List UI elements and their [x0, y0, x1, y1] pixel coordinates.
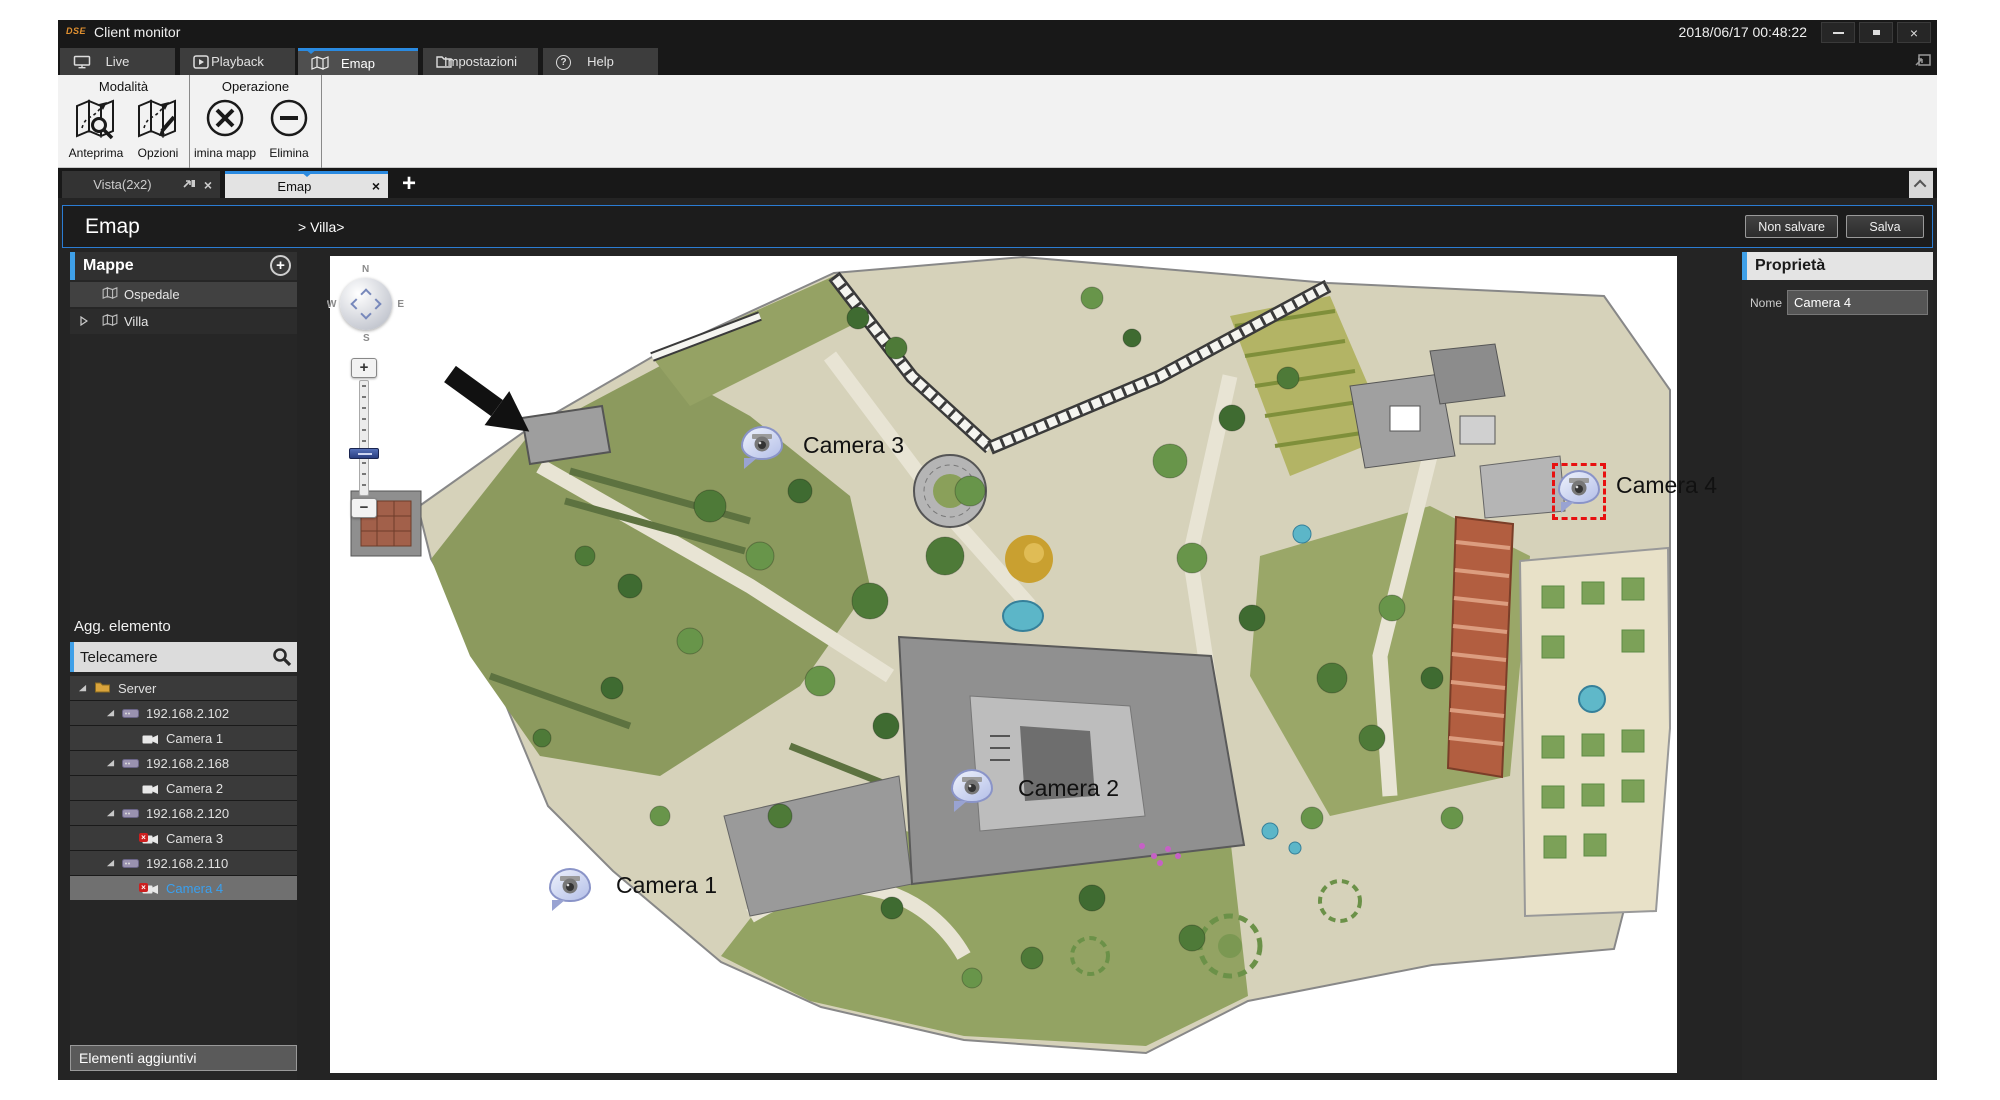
zoom-out-button[interactable]: − [351, 498, 377, 518]
offline-badge: × [139, 833, 148, 842]
main-tab-bar: Live Playback Emap Impostazioni ? Help [58, 46, 1937, 75]
tree-item-device[interactable]: 192.168.2.102 [70, 701, 297, 725]
title-bar: DSE Client monitor 2018/06/17 00:48:22 × [58, 20, 1937, 46]
remove-icon [266, 127, 312, 144]
monitor-icon [73, 55, 91, 72]
expander-icon[interactable] [106, 856, 115, 871]
app-logo-icon: DSE [66, 26, 86, 36]
camera-offline-icon: × [142, 833, 159, 844]
camera4-marker[interactable] [1558, 470, 1600, 504]
tree-item-device[interactable]: 192.168.2.110 [70, 851, 297, 875]
pan-down-arrow[interactable] [360, 308, 371, 319]
tab-label: Help [587, 54, 614, 69]
elimina-button[interactable]: Elimina [258, 98, 320, 160]
properties-header: Proprietà [1742, 252, 1933, 280]
dome-camera-icon [959, 776, 985, 796]
tree-label: Camera 4 [166, 881, 223, 896]
map-edit-icon [135, 127, 181, 144]
help-icon: ? [556, 55, 571, 70]
camera-icon [142, 733, 159, 744]
search-input[interactable] [80, 645, 260, 669]
offline-badge: × [139, 883, 148, 892]
view-tab-bar: Vista(2x2) × Emap × + [58, 168, 1937, 198]
chevron-up-icon [1913, 180, 1926, 193]
close-button[interactable]: × [1897, 22, 1931, 43]
tree-label: Camera 3 [166, 831, 223, 846]
ribbon: Modalità Anteprima Opzioni Operazione im… [58, 75, 1937, 168]
anteprima-button[interactable]: Anteprima [65, 98, 127, 160]
button-label: Opzioni [127, 146, 189, 160]
button-label: Anteprima [65, 146, 127, 160]
zoom-in-button[interactable]: + [351, 358, 377, 378]
camera-tree: Server 192.168.2.102 Camera 1 192.168.2.… [70, 676, 297, 900]
view-tab-emap[interactable]: Emap × [225, 171, 388, 198]
maximize-icon [1871, 28, 1882, 37]
map-item-ospedale[interactable]: Ospedale [70, 282, 297, 307]
pan-right-arrow[interactable] [370, 298, 381, 309]
ribbon-group-modalita: Modalità Anteprima Opzioni [58, 75, 190, 168]
maps-panel-header: Mappe + [70, 252, 297, 280]
sidebar: Mappe + Ospedale Villa Agg. elemento Ser… [70, 252, 297, 1080]
tree-item-camera[interactable]: Camera 1 [70, 726, 297, 750]
tree-item-device[interactable]: 192.168.2.168 [70, 751, 297, 775]
camera4-label: Camera 4 [1616, 472, 1717, 499]
add-tab-button[interactable]: + [396, 171, 422, 198]
button-label: imina mapp [194, 146, 256, 160]
elimina-mappa-button[interactable]: imina mapp [194, 98, 256, 160]
maps-header-label: Mappe [83, 257, 134, 274]
dock-icon[interactable] [183, 177, 196, 192]
map-preview-icon [73, 127, 119, 144]
delete-map-icon [202, 127, 248, 144]
properties-header-label: Proprietà [1755, 257, 1825, 274]
save-button[interactable]: Salva [1846, 215, 1924, 238]
dome-camera-icon [557, 875, 583, 895]
tree-label: 192.168.2.102 [146, 706, 229, 721]
tree-label: Server [118, 681, 156, 696]
tree-label: Camera 2 [166, 781, 223, 796]
compass-south-label: S [363, 333, 370, 344]
tab-playback[interactable]: Playback [180, 48, 295, 75]
group-label: Modalità [58, 79, 189, 94]
nvr-icon [122, 856, 139, 871]
map-icon [311, 56, 329, 73]
name-field[interactable] [1787, 290, 1928, 315]
expander-icon[interactable] [78, 681, 87, 696]
app-window: DSE Client monitor 2018/06/17 00:48:22 ×… [58, 20, 1937, 1080]
tab-label: Playback [211, 54, 264, 69]
camera3-label: Camera 3 [803, 432, 904, 459]
search-icon[interactable] [272, 647, 292, 672]
zoom-slider-handle[interactable] [349, 448, 379, 459]
nvr-icon [122, 806, 139, 821]
close-tab-icon[interactable]: × [196, 177, 220, 193]
page-title: Emap [85, 215, 140, 239]
expand-arrow-icon[interactable] [80, 314, 88, 329]
nvr-icon [122, 756, 139, 771]
group-label: Operazione [190, 79, 321, 94]
camera-offline-icon: × [142, 883, 159, 894]
window-title: Client monitor [94, 24, 180, 40]
additional-elements-bar[interactable]: Elementi aggiuntivi [70, 1045, 297, 1071]
add-map-button[interactable]: + [270, 255, 291, 276]
tree-item-camera-offline[interactable]: × Camera 3 [70, 826, 297, 850]
view-tab-vista[interactable]: Vista(2x2) × [62, 171, 220, 198]
map-item-villa[interactable]: Villa [70, 309, 297, 334]
villa-map-illustration [330, 256, 1677, 1073]
camera2-marker[interactable] [951, 769, 993, 803]
tree-item-device[interactable]: 192.168.2.120 [70, 801, 297, 825]
expander-icon[interactable] [106, 806, 115, 821]
folder-icon [436, 55, 452, 71]
discard-button[interactable]: Non salvare [1745, 215, 1838, 238]
camera3-marker[interactable] [741, 426, 783, 460]
tab-label: Impostazioni [444, 54, 517, 69]
compass-north-label: N [362, 264, 369, 275]
compass-control[interactable]: N S W E [340, 278, 392, 330]
opzioni-button[interactable]: Opzioni [127, 98, 189, 160]
map-icon [102, 287, 118, 302]
camera1-label: Camera 1 [616, 872, 717, 899]
expander-icon[interactable] [106, 706, 115, 721]
camera2-label: Camera 2 [1018, 775, 1119, 802]
tab-live[interactable]: Live [60, 48, 175, 75]
camera-search-box [70, 642, 297, 672]
map-icon [102, 314, 118, 329]
properties-panel: Proprietà Nome [1742, 252, 1933, 1080]
close-tab-icon[interactable]: × [364, 178, 388, 194]
tab-label: Live [106, 54, 130, 69]
expander-icon[interactable] [106, 756, 115, 771]
button-label: Elimina [258, 146, 320, 160]
map-item-label: Ospedale [124, 287, 180, 302]
popout-icon[interactable] [1915, 52, 1931, 71]
zoom-ticks [362, 385, 366, 491]
tree-item-camera[interactable]: Camera 2 [70, 776, 297, 800]
folder-icon [94, 680, 111, 696]
tab-impostazioni[interactable]: Impostazioni [423, 48, 538, 75]
breadcrumb: > Villa> [298, 219, 344, 235]
dome-camera-icon [749, 433, 775, 453]
zoom-slider-track[interactable] [359, 380, 369, 496]
dome-camera-icon [1566, 477, 1592, 497]
tree-label: 192.168.2.120 [146, 806, 229, 821]
emap-header-bar: Emap > Villa> Non salvare Salva [62, 205, 1933, 248]
minimize-button[interactable] [1821, 22, 1855, 43]
view-tab-label: Emap [225, 179, 364, 194]
pan-up-arrow[interactable] [360, 288, 371, 299]
play-icon [193, 55, 209, 72]
compass-east-label: E [397, 299, 404, 310]
compass-west-label: W [327, 299, 336, 310]
tree-label: 192.168.2.168 [146, 756, 229, 771]
map-item-label: Villa [124, 314, 148, 329]
add-element-label: Agg. elemento [74, 618, 171, 635]
nvr-icon [122, 706, 139, 721]
tree-item-server[interactable]: Server [70, 676, 297, 700]
view-tab-label: Vista(2x2) [62, 177, 183, 192]
tree-item-camera-selected[interactable]: × Camera 4 [70, 876, 297, 900]
collapse-ribbon-button[interactable] [1909, 171, 1933, 198]
map-canvas[interactable]: N S W E + − Camera 1 Camera 2 Camera 3 [330, 256, 1677, 1073]
tree-label: Camera 1 [166, 731, 223, 746]
camera1-marker[interactable] [549, 868, 591, 902]
camera-icon [142, 783, 159, 794]
tab-label: Emap [341, 56, 375, 71]
pan-left-arrow[interactable] [350, 298, 361, 309]
minimize-icon [1833, 32, 1844, 34]
tab-help[interactable]: ? Help [543, 48, 658, 75]
tree-label: 192.168.2.110 [146, 856, 228, 871]
ribbon-group-operazione: Operazione imina mapp Elimina [190, 75, 322, 168]
tab-emap[interactable]: Emap [298, 48, 418, 75]
name-label: Nome [1750, 296, 1782, 310]
maximize-button[interactable] [1859, 22, 1893, 43]
clock: 2018/06/17 00:48:22 [1679, 24, 1807, 40]
